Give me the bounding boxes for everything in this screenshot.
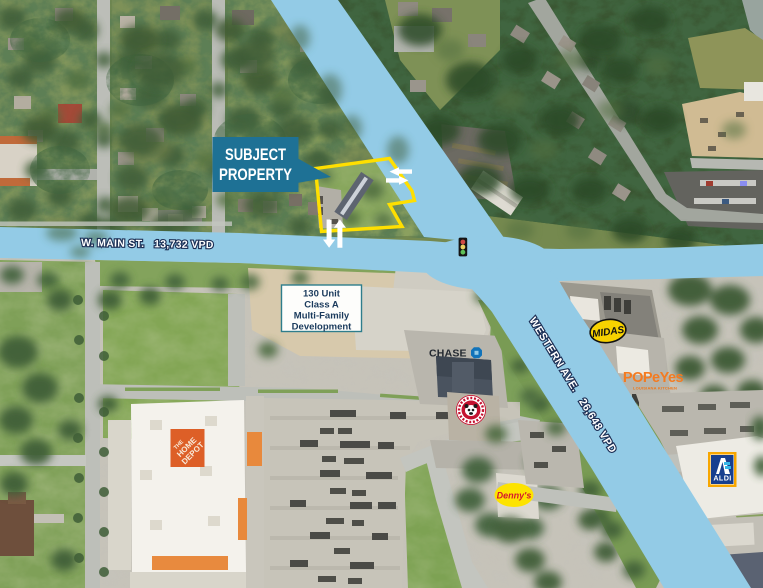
svg-text:CHASE: CHASE bbox=[429, 348, 467, 360]
svg-text:W. MAIN ST. 13,732 VPD: W. MAIN ST. 13,732 VPD bbox=[81, 237, 214, 251]
svg-text:SUBJECT: SUBJECT bbox=[225, 145, 286, 164]
svg-text:PROPERTY: PROPERTY bbox=[219, 165, 293, 184]
svg-text:Multi-Family: Multi-Family bbox=[294, 311, 350, 322]
svg-text:Development: Development bbox=[292, 322, 352, 333]
svg-text:Class A: Class A bbox=[304, 300, 339, 311]
svg-text:POPeYes: POPeYes bbox=[623, 370, 684, 386]
svg-text:130 Unit: 130 Unit bbox=[303, 289, 341, 300]
svg-text:ALDI: ALDI bbox=[713, 474, 731, 483]
svg-text:LOUISIANA KITCHEN: LOUISIANA KITCHEN bbox=[633, 386, 677, 391]
svg-text:Denny's: Denny's bbox=[497, 491, 532, 501]
